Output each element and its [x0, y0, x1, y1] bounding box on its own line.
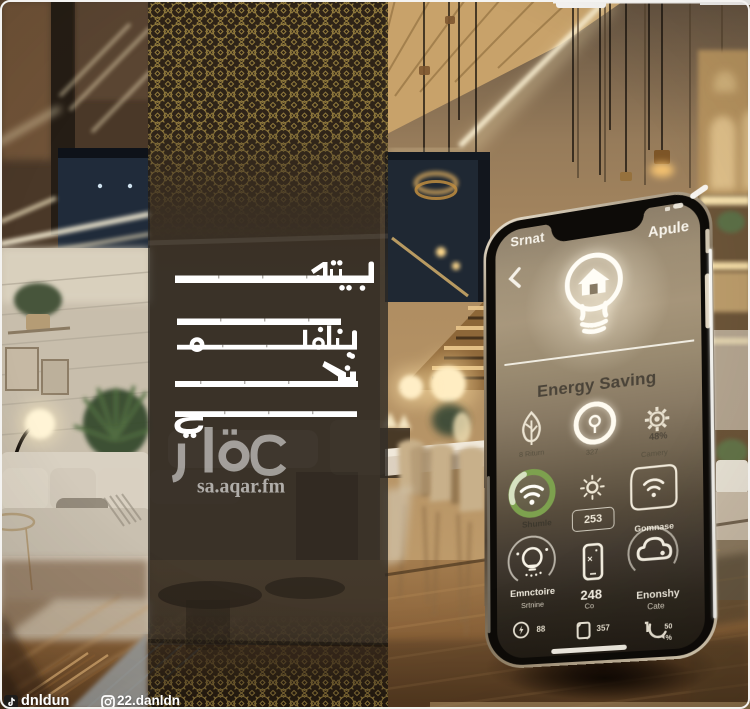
svg-text:50: 50: [664, 623, 673, 632]
svg-text:sa.aqar.fm: sa.aqar.fm: [197, 476, 285, 498]
svg-text:%: %: [665, 634, 672, 642]
